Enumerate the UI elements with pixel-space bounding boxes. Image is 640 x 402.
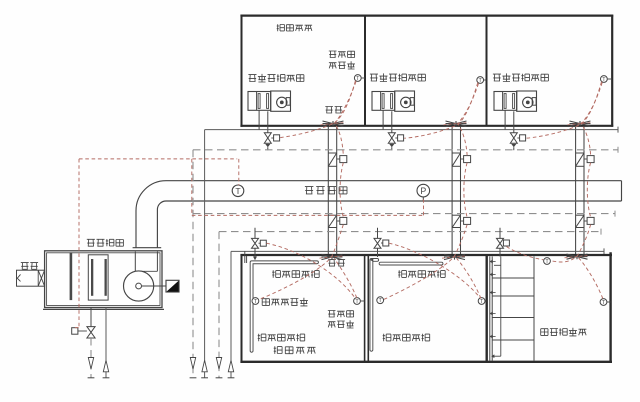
- svg-text:T: T: [235, 186, 241, 196]
- svg-text:P: P: [420, 186, 426, 196]
